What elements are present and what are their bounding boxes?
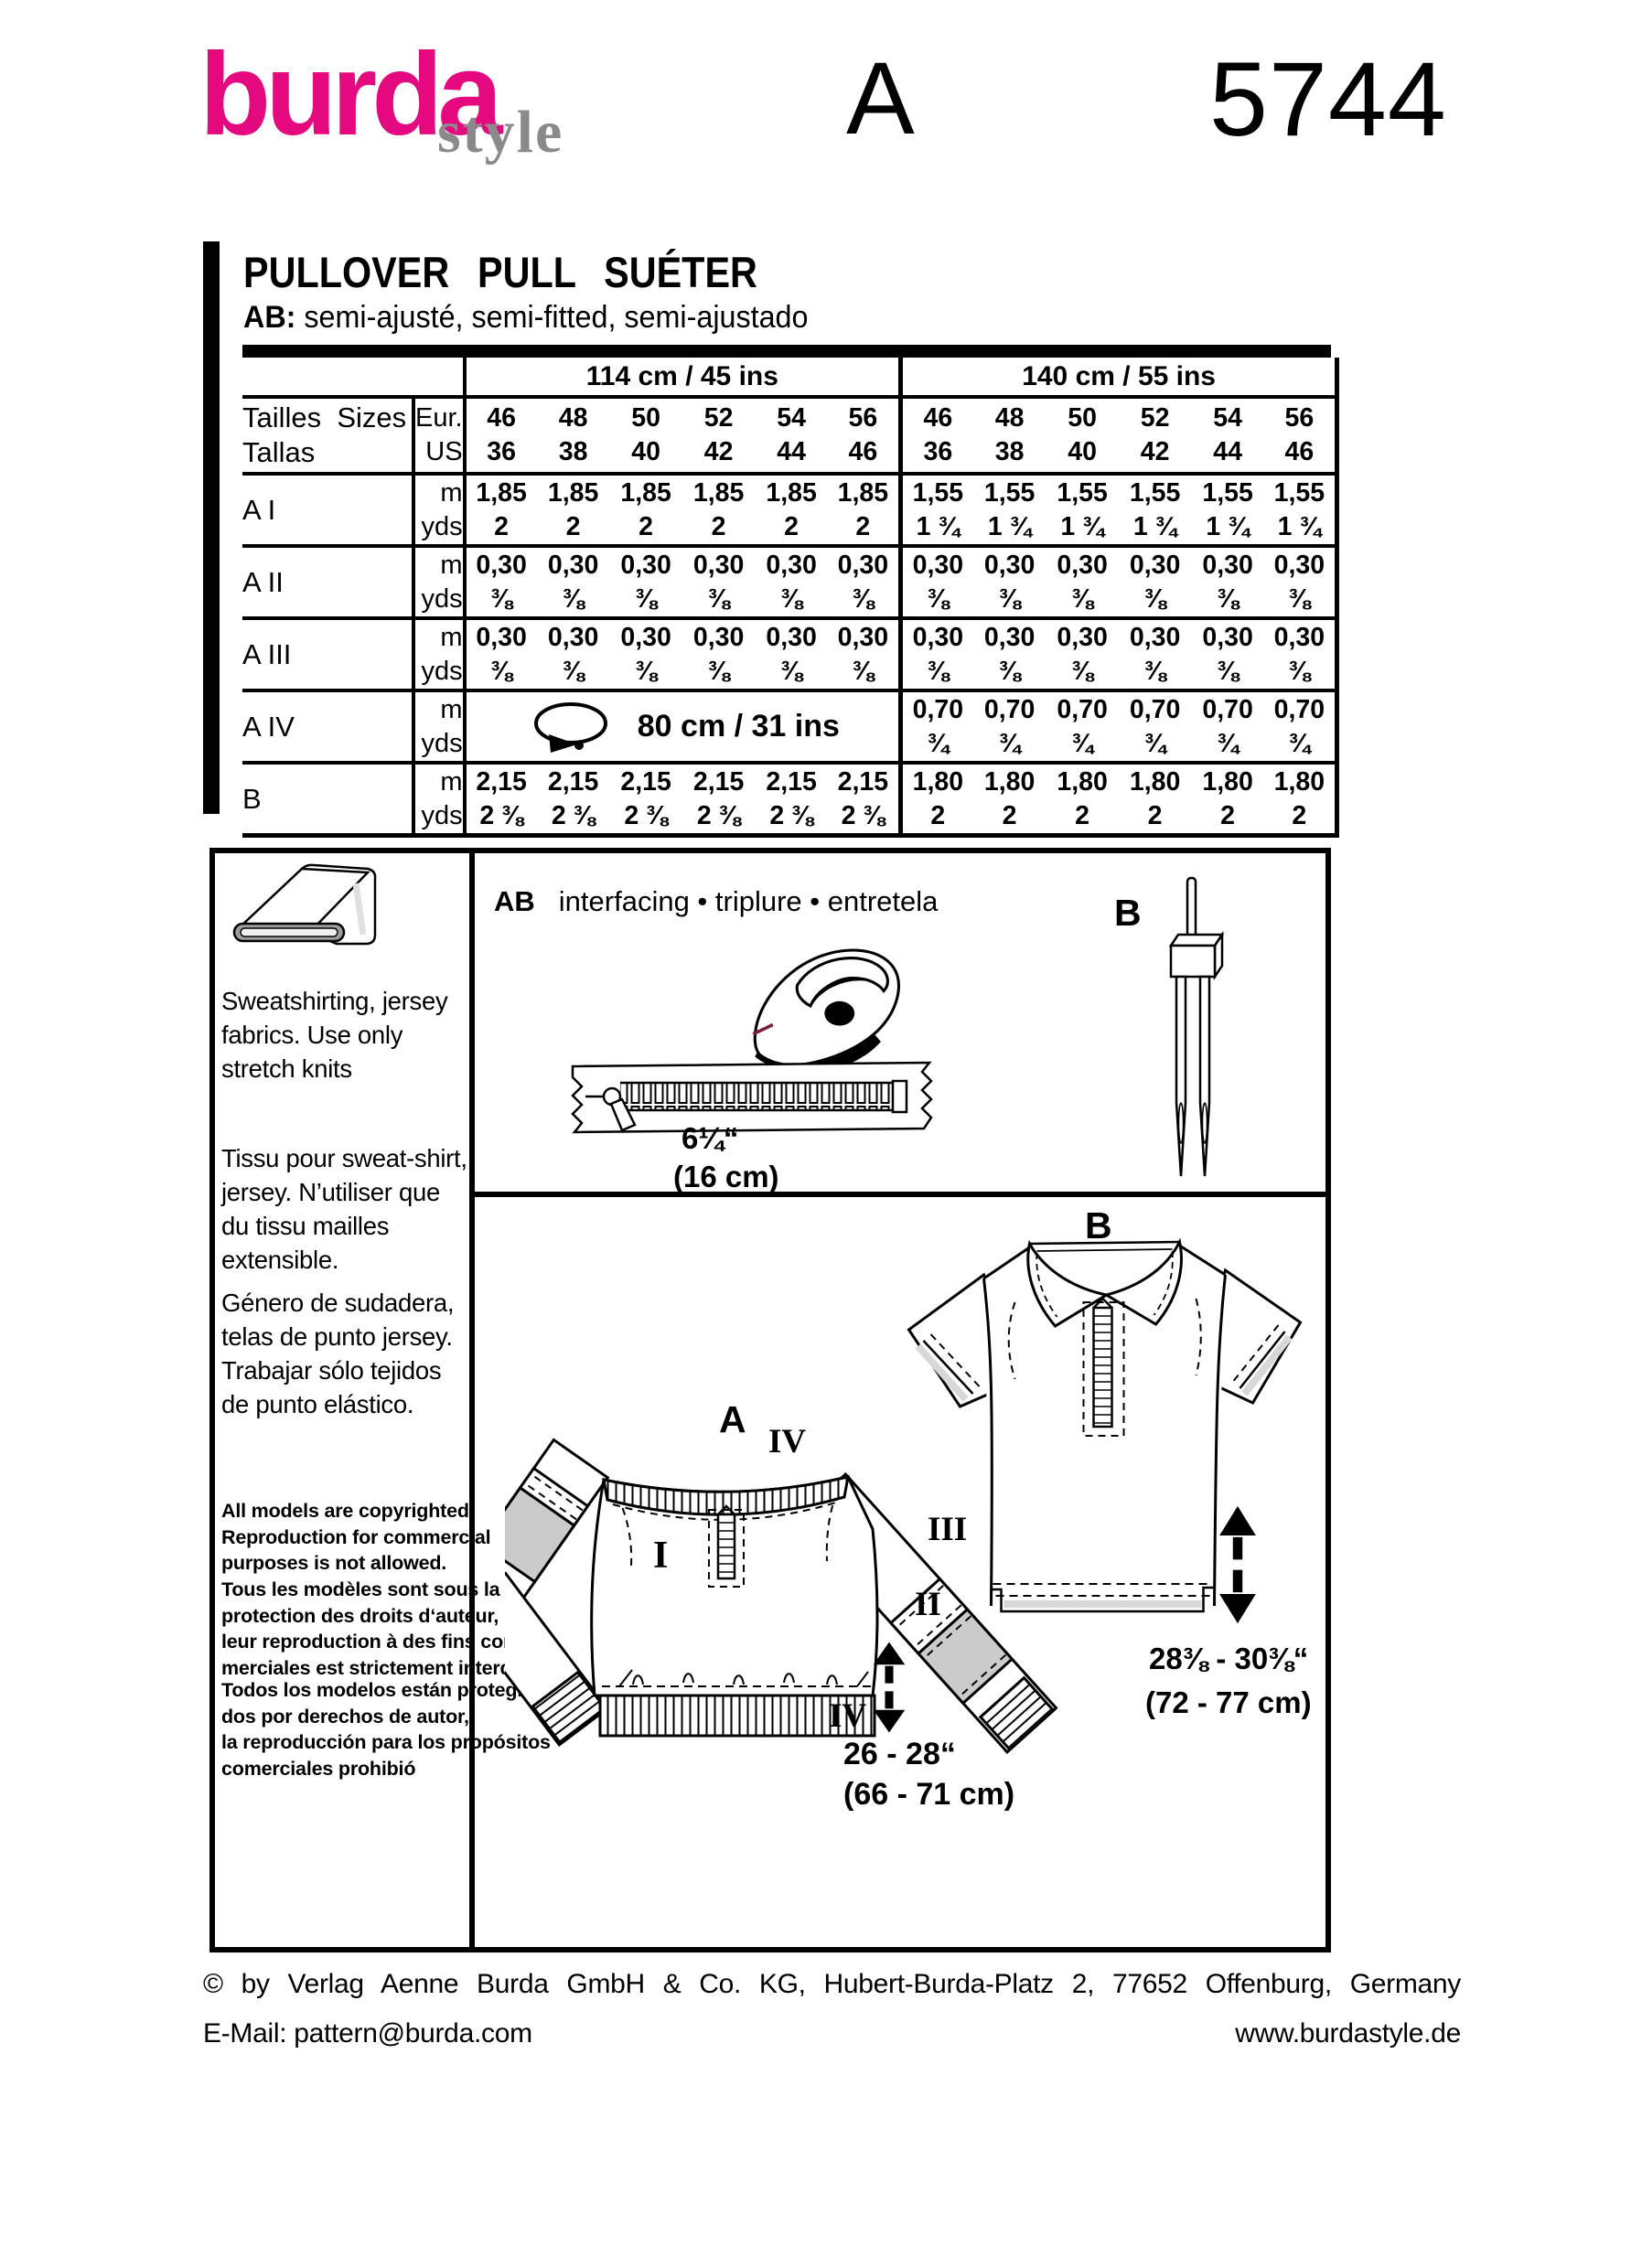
piece-iv-neck-label: IV xyxy=(768,1425,806,1459)
yardage-cell: 0,30 ⅜ xyxy=(1264,618,1337,690)
fit-prefix: AB: xyxy=(243,300,295,335)
piece-iii-label: III xyxy=(928,1513,967,1546)
yardage-cell: 2,15 2 ⅜ xyxy=(682,763,756,836)
fabric-advice-es: Género de sudadera, telas de punto jerse… xyxy=(221,1286,454,1421)
yardage-cell: 1,80 2 xyxy=(1264,763,1337,836)
yardage-cell: 0,30 ⅜ xyxy=(537,546,610,618)
yardage-cell: 0,30 ⅜ xyxy=(901,618,973,690)
yardage-cell: 0,70 ¾ xyxy=(901,690,973,763)
table-top-bar xyxy=(242,345,1331,358)
yardage-cell: 0,30 ⅜ xyxy=(465,618,537,690)
view-b-length-inches: 28⅜ - 30⅜“ xyxy=(1149,1641,1308,1677)
view-a-label: A xyxy=(719,1401,746,1439)
yardage-table-container: 114 cm / 45 ins140 cm / 55 insTailles Si… xyxy=(242,358,1339,838)
yardage-cell: 0,30 ⅜ xyxy=(901,546,973,618)
row-label-cell: A IV xyxy=(242,690,413,763)
row-label-cell: A I xyxy=(242,474,413,546)
length-arrow-b-icon xyxy=(1217,1504,1259,1625)
yardage-cell: 1,55 1 ¾ xyxy=(901,474,973,546)
view-a-length-cm: (66 - 71 cm) xyxy=(843,1776,1014,1813)
yardage-cell: 0,30 ⅜ xyxy=(828,618,901,690)
pattern-envelope-back: burda style A 5744 PULLOVER PULL SUÉTER … xyxy=(0,0,1642,2268)
yardage-cell: 0,30 ⅜ xyxy=(973,618,1046,690)
yardage-cell: 0,30 ⅜ xyxy=(537,618,610,690)
yardage-cell: 2,15 2 ⅜ xyxy=(756,763,828,836)
yardage-cell: 1,80 2 xyxy=(1046,763,1119,836)
piece-iv-hem-label: IV xyxy=(829,1699,866,1733)
yardage-cell: 0,30 ⅜ xyxy=(973,546,1046,618)
piece-ii-label: II xyxy=(915,1588,941,1621)
size-cell: 52 42 xyxy=(1119,397,1192,474)
yardage-cell: 1,85 2 xyxy=(682,474,756,546)
size-cell: 56 46 xyxy=(1264,397,1337,474)
copyright-notice-en: All models are copyrighted. Reproduction… xyxy=(221,1498,490,1577)
yardage-cell: 0,30 ⅜ xyxy=(828,546,901,618)
sizes-unit-cell: Eur. US xyxy=(413,397,465,474)
copyright-notice-es: Todos los modelos están protegi- dos por… xyxy=(221,1677,551,1781)
yardage-cell: 0,30 ⅜ xyxy=(465,546,537,618)
yardage-cell: 2,15 2 ⅜ xyxy=(537,763,610,836)
yardage-cell: 2,15 2 ⅜ xyxy=(465,763,537,836)
view-b-label: B xyxy=(1085,1207,1112,1245)
yardage-cell: 1,85 2 xyxy=(465,474,537,546)
corner-cell xyxy=(242,358,465,397)
yardage-cell: 0,70 ¾ xyxy=(1046,690,1119,763)
yardage-cell: 0,70 ¾ xyxy=(1192,690,1264,763)
view-letter: A xyxy=(846,48,915,150)
yardage-cell: 0,30 ⅜ xyxy=(682,546,756,618)
yardage-cell: 0,30 ⅜ xyxy=(756,618,828,690)
table-sizes-row: Tailles Sizes TallasEur. US46 3648 3850 … xyxy=(242,397,1337,474)
yardage-cell: 0,30 ⅜ xyxy=(1046,546,1119,618)
pattern-number: 5744 xyxy=(1209,42,1447,158)
yardage-cell: 2,15 2 ⅜ xyxy=(610,763,682,836)
table-data-row: A Im yds1,85 21,85 21,85 21,85 21,85 21,… xyxy=(242,474,1337,546)
yardage-cell: 1,80 2 xyxy=(1192,763,1264,836)
yardage-cell: 0,30 ⅜ xyxy=(1119,618,1192,690)
view-a-drawing xyxy=(505,1419,1109,1790)
twin-needle-view-label: B xyxy=(1114,894,1142,932)
row-label-cell: B xyxy=(242,763,413,836)
row-unit-cell: m yds xyxy=(413,546,465,618)
width-group-114: 114 cm / 45 ins xyxy=(465,358,901,397)
brand-logo-sub: style xyxy=(437,102,563,163)
fit-text: semi-ajusté, semi-fitted, semi-ajustado xyxy=(295,300,808,335)
yardage-cell: 0,30 ⅜ xyxy=(1264,546,1337,618)
yardage-cell: 0,30 ⅜ xyxy=(1046,618,1119,690)
elastic-length-text: 80 cm / 31 ins xyxy=(638,709,840,744)
yardage-cell: 1,55 1 ¾ xyxy=(1119,474,1192,546)
yardage-cell: 0,30 ⅜ xyxy=(1192,546,1264,618)
row-unit-cell: m yds xyxy=(413,690,465,763)
row-label-cell: A III xyxy=(242,618,413,690)
table-data-row: A IIm yds0,30 ⅜0,30 ⅜0,30 ⅜0,30 ⅜0,30 ⅜0… xyxy=(242,546,1337,618)
elastic-cell: 80 cm / 31 ins xyxy=(465,690,901,763)
contact-line: E-Mail: pattern@burda.com www.burdastyle… xyxy=(203,2017,1461,2050)
yardage-table: 114 cm / 45 ins140 cm / 55 insTailles Si… xyxy=(242,358,1339,838)
yardage-cell: 0,30 ⅜ xyxy=(1119,546,1192,618)
yardage-cell: 1,55 1 ¾ xyxy=(1192,474,1264,546)
interfacing-line: ABinterfacing • triplure • entretela xyxy=(494,885,938,918)
piece-i-label: I xyxy=(653,1536,668,1575)
elastic-wrap: 80 cm / 31 ins xyxy=(467,692,899,761)
yardage-cell: 0,30 ⅜ xyxy=(610,618,682,690)
fabric-bolt-icon xyxy=(231,858,400,949)
view-a-length-inches: 26 - 28“ xyxy=(843,1736,956,1773)
email-text: E-Mail: pattern@burda.com xyxy=(203,2017,532,2050)
yardage-cell: 0,30 ⅜ xyxy=(682,618,756,690)
size-cell: 48 38 xyxy=(973,397,1046,474)
yardage-cell: 1,85 2 xyxy=(610,474,682,546)
zipper-icon xyxy=(558,1050,947,1141)
length-arrow-a-icon xyxy=(871,1641,907,1734)
yardage-cell: 2,15 2 ⅜ xyxy=(828,763,901,836)
size-cell: 50 40 xyxy=(610,397,682,474)
interfacing-text: interfacing • triplure • entretela xyxy=(559,885,939,917)
row-unit-cell: m yds xyxy=(413,474,465,546)
yardage-cell: 1,85 2 xyxy=(828,474,901,546)
elastic-loop-icon xyxy=(525,700,612,754)
fit-description: AB: semi-ajusté, semi-fitted, semi-ajust… xyxy=(243,302,808,333)
size-cell: 54 44 xyxy=(1192,397,1264,474)
copyright-notice-fr: Tous les modèles sont sous la protection… xyxy=(221,1577,540,1681)
yardage-cell: 1,55 1 ¾ xyxy=(973,474,1046,546)
table-data-row: A IVm yds 80 cm / 31 ins0,70 ¾0,70 ¾0,70… xyxy=(242,690,1337,763)
twin-needle-icon xyxy=(1154,874,1228,1190)
table-data-row: Bm yds2,15 2 ⅜2,15 2 ⅜2,15 2 ⅜2,15 2 ⅜2,… xyxy=(242,763,1337,836)
table-data-row: A IIIm yds0,30 ⅜0,30 ⅜0,30 ⅜0,30 ⅜0,30 ⅜… xyxy=(242,618,1337,690)
size-cell: 50 40 xyxy=(1046,397,1119,474)
fabric-advice-fr: Tissu pour sweat-shirt, jersey. N’utilis… xyxy=(221,1141,467,1277)
yardage-cell: 0,70 ¾ xyxy=(973,690,1046,763)
fabric-advice-en: Sweatshirting, jersey fabrics. Use only … xyxy=(221,984,447,1086)
yardage-cell: 0,30 ⅜ xyxy=(756,546,828,618)
size-cell: 48 38 xyxy=(537,397,610,474)
garment-title: PULLOVER PULL SUÉTER xyxy=(243,251,757,294)
size-cell: 54 44 xyxy=(756,397,828,474)
yardage-cell: 1,55 1 ¾ xyxy=(1046,474,1119,546)
size-cell: 46 36 xyxy=(465,397,537,474)
title-accent-bar xyxy=(203,241,220,814)
website-text: www.burdastyle.de xyxy=(1235,2017,1461,2050)
yardage-cell: 1,85 2 xyxy=(756,474,828,546)
size-cell: 52 42 xyxy=(682,397,756,474)
yardage-cell: 0,30 ⅜ xyxy=(1192,618,1264,690)
view-b-length-cm: (72 - 77 cm) xyxy=(1145,1685,1312,1721)
sizes-label-cell: Tailles Sizes Tallas xyxy=(242,397,413,474)
yardage-cell: 0,70 ¾ xyxy=(1119,690,1192,763)
yardage-cell: 1,80 2 xyxy=(1119,763,1192,836)
panel-divider-horizontal xyxy=(469,1192,1331,1197)
yardage-cell: 1,85 2 xyxy=(537,474,610,546)
zipper-length-inches: 6¼“ xyxy=(681,1121,738,1156)
yardage-cell: 1,80 2 xyxy=(973,763,1046,836)
yardage-cell: 0,70 ¾ xyxy=(1264,690,1337,763)
table-header-row: 114 cm / 45 ins140 cm / 55 ins xyxy=(242,358,1337,397)
zipper-length-cm: (16 cm) xyxy=(673,1160,779,1194)
table-body: 114 cm / 45 ins140 cm / 55 insTailles Si… xyxy=(242,358,1337,836)
publisher-line: © by Verlag Aenne Burda GmbH & Co. KG, H… xyxy=(203,1968,1461,2001)
row-unit-cell: m yds xyxy=(413,763,465,836)
interfacing-views: AB xyxy=(494,885,535,917)
yardage-cell: 1,80 2 xyxy=(901,763,973,836)
panel-divider-vertical xyxy=(469,848,475,1952)
size-cell: 56 46 xyxy=(828,397,901,474)
row-unit-cell: m yds xyxy=(413,618,465,690)
width-group-140: 140 cm / 55 ins xyxy=(901,358,1337,397)
yardage-cell: 1,55 1 ¾ xyxy=(1264,474,1337,546)
size-cell: 46 36 xyxy=(901,397,973,474)
yardage-cell: 0,30 ⅜ xyxy=(610,546,682,618)
row-label-cell: A II xyxy=(242,546,413,618)
